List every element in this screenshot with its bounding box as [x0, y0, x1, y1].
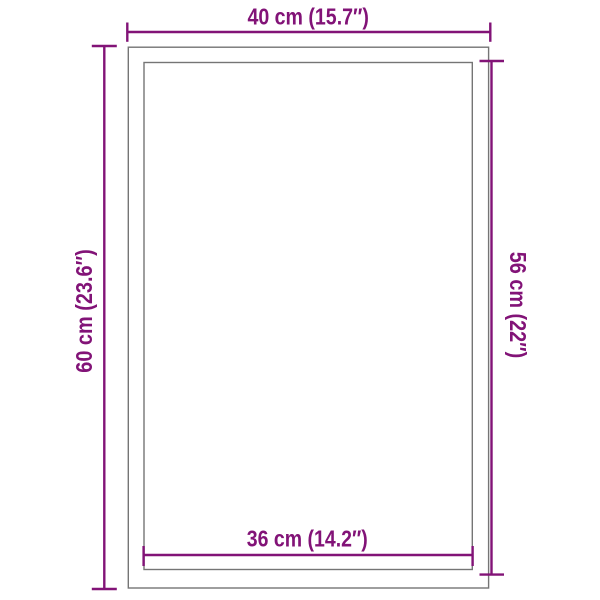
svg-text:56 cm (22″): 56 cm (22″)	[505, 252, 531, 359]
svg-text:40 cm (15.7″): 40 cm (15.7″)	[247, 4, 369, 30]
svg-text:60 cm (23.6″): 60 cm (23.6″)	[71, 249, 97, 373]
svg-text:36 cm (14.2″): 36 cm (14.2″)	[247, 525, 368, 551]
